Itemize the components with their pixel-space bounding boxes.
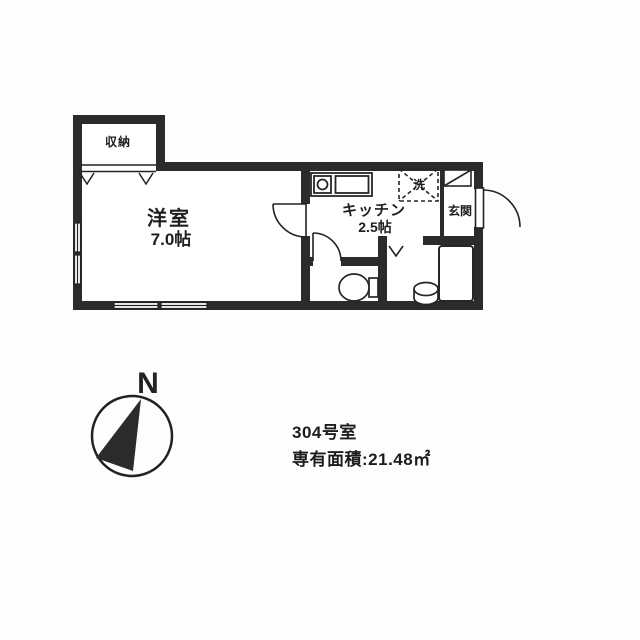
room-size-western-room: 7.0帖	[128, 231, 214, 248]
plan-caption: 304号室 専有面積:21.48㎡	[292, 418, 431, 470]
room-label-closet: 収納	[88, 136, 148, 148]
toilet-icon	[339, 274, 378, 301]
compass-rose	[92, 396, 172, 476]
room-label-western-room: 洋室	[128, 209, 210, 229]
stove-burner-icon	[318, 180, 328, 190]
floorplan: 収納 洋室 7.0帖 キッチン 2.5帖 玄関 洗 N 304号室 専有面積:2…	[0, 0, 640, 640]
exclusive-area: 専有面積:21.48㎡	[292, 445, 431, 470]
shoe-cabinet-icon	[444, 170, 471, 186]
floorplan-drawing	[0, 0, 640, 640]
room-number: 304号室	[292, 418, 431, 443]
room-label-entrance: 玄関	[441, 205, 479, 217]
bathtub-icon	[439, 246, 473, 301]
room-label-laundry: 洗	[408, 179, 430, 191]
sink-icon	[336, 176, 369, 193]
room-size-kitchen: 2.5帖	[333, 220, 417, 234]
room-label-kitchen: キッチン	[333, 203, 415, 218]
compass-north-label: N	[133, 369, 163, 399]
kitchen-counter	[311, 173, 372, 196]
washbasin-icon	[414, 283, 438, 305]
